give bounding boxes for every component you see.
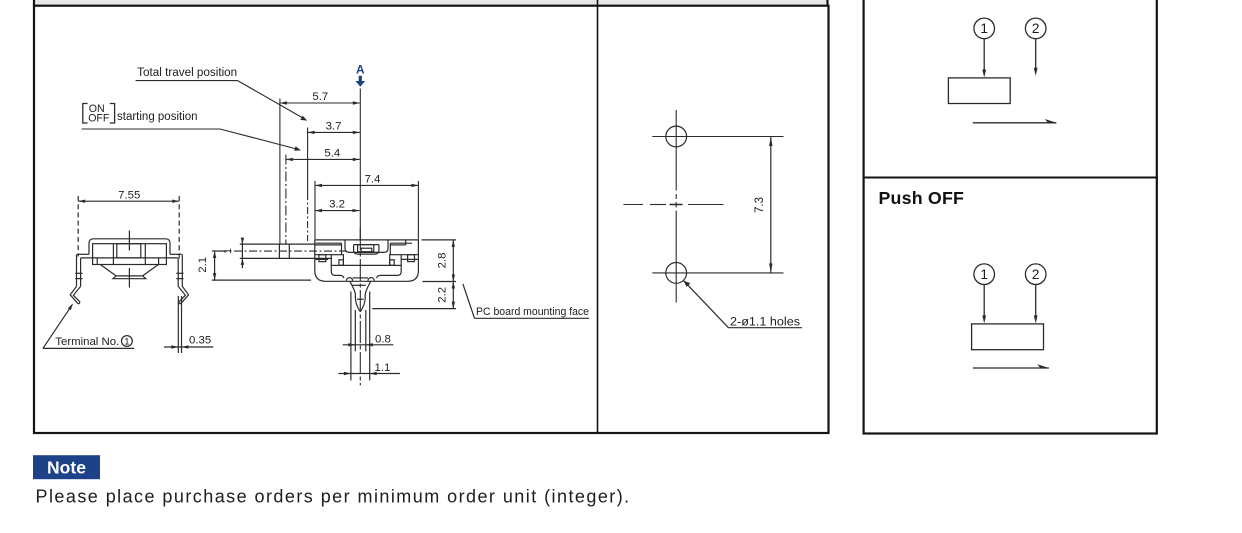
- svg-text:0.35: 0.35: [189, 335, 211, 347]
- svg-text:2.1: 2.1: [197, 257, 209, 273]
- svg-text:2: 2: [1032, 267, 1040, 282]
- svg-text:5.4: 5.4: [324, 147, 340, 159]
- svg-text:1: 1: [980, 21, 988, 36]
- svg-text:7.4: 7.4: [365, 173, 381, 185]
- svg-text:starting position: starting position: [117, 111, 198, 123]
- svg-text:2-ø1.1 holes: 2-ø1.1 holes: [730, 316, 800, 328]
- svg-text:3.2: 3.2: [329, 199, 345, 211]
- svg-text:Please place purchase orders p: Please place purchase orders per minimum…: [36, 487, 631, 507]
- svg-text:Total travel position: Total travel position: [137, 67, 237, 79]
- svg-text:0.8: 0.8: [375, 333, 391, 345]
- svg-text:1.1: 1.1: [375, 362, 391, 374]
- svg-text:Note: Note: [47, 457, 86, 477]
- svg-text:7.3: 7.3: [754, 197, 766, 213]
- svg-text:5.7: 5.7: [312, 91, 328, 103]
- svg-text:2.8: 2.8: [436, 253, 448, 269]
- svg-text:PC board mounting face: PC board mounting face: [476, 306, 589, 318]
- svg-text:1: 1: [223, 248, 234, 254]
- svg-text:Push OFF: Push OFF: [879, 188, 965, 208]
- svg-text:1: 1: [980, 267, 988, 282]
- svg-text:Terminal No.: Terminal No.: [55, 336, 119, 348]
- svg-text:3.7: 3.7: [326, 120, 342, 132]
- svg-text:2: 2: [1032, 21, 1040, 36]
- svg-text:A: A: [356, 63, 365, 77]
- svg-text:7.55: 7.55: [118, 189, 140, 201]
- svg-text:1: 1: [124, 337, 129, 348]
- svg-text:2.2: 2.2: [436, 287, 448, 303]
- svg-text:OFF: OFF: [88, 112, 110, 124]
